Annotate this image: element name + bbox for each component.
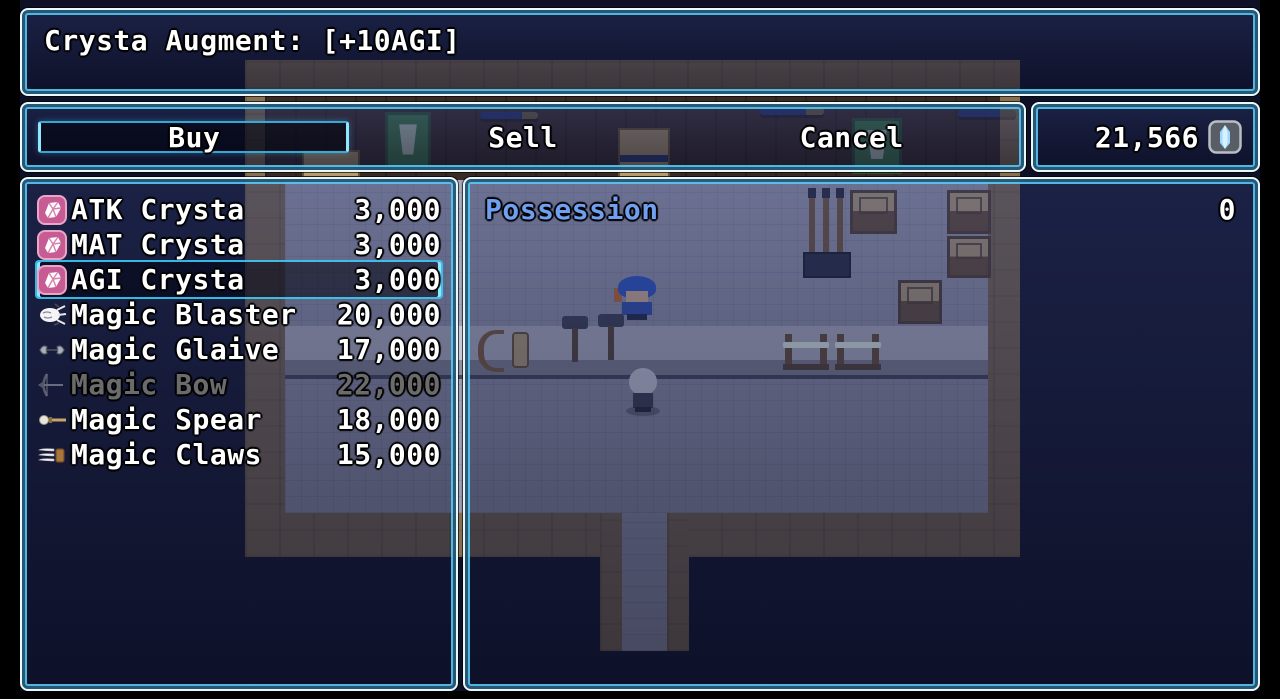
item-price: 15,000 xyxy=(337,438,441,471)
shop-item-row[interactable]: MAT Crysta3,000 xyxy=(37,227,441,262)
command-sell-label: Sell xyxy=(488,121,557,154)
shop-item-row[interactable]: Magic Blaster20,000 xyxy=(37,297,441,332)
letterbox-right xyxy=(1260,0,1280,699)
claws-item-icon xyxy=(37,440,67,470)
command-buy[interactable]: Buy xyxy=(30,112,359,162)
item-price: 3,000 xyxy=(354,193,441,226)
help-text: Crysta Augment: [+10AGI] xyxy=(44,24,461,57)
shop-item-row[interactable]: Magic Claws15,000 xyxy=(37,437,441,472)
letterbox-bottom xyxy=(0,691,1280,699)
command-sell[interactable]: Sell xyxy=(359,112,688,162)
item-name: Magic Glaive xyxy=(71,333,279,366)
shop-item-list: ATK Crysta3,000MAT Crysta3,000AGI Crysta… xyxy=(37,192,441,472)
item-price: 20,000 xyxy=(337,298,441,331)
crysta-item-icon xyxy=(37,265,67,295)
command-cancel[interactable]: Cancel xyxy=(687,112,1016,162)
help-window: Crysta Augment: [+10AGI] xyxy=(20,8,1260,96)
buy-list-window: ATK Crysta3,000MAT Crysta3,000AGI Crysta… xyxy=(20,177,458,691)
bow-item-icon xyxy=(37,370,67,400)
item-name: ATK Crysta xyxy=(71,193,245,226)
item-name: Magic Blaster xyxy=(71,298,297,331)
item-price: 22,000 xyxy=(337,368,441,401)
command-cancel-label: Cancel xyxy=(800,121,904,154)
item-name: AGI Crysta xyxy=(71,263,245,296)
item-name: Magic Claws xyxy=(71,438,262,471)
item-name: Magic Spear xyxy=(71,403,262,436)
command-buy-label: Buy xyxy=(168,121,220,154)
shop-status-window: Possession 0 xyxy=(463,177,1260,691)
blaster-item-icon xyxy=(37,300,67,330)
crysta-item-icon xyxy=(37,195,67,225)
spear-item-icon xyxy=(37,405,67,435)
shop-item-row[interactable]: Magic Spear18,000 xyxy=(37,402,441,437)
item-price: 18,000 xyxy=(337,403,441,436)
crysta-currency-icon xyxy=(1208,120,1242,154)
shop-item-row[interactable]: Magic Glaive17,000 xyxy=(37,332,441,367)
item-name: MAT Crysta xyxy=(71,228,245,261)
shop-item-row[interactable]: Magic Bow22,000 xyxy=(37,367,441,402)
shop-item-row[interactable]: AGI Crysta3,000 xyxy=(37,262,441,297)
item-name: Magic Bow xyxy=(71,368,227,401)
game-screen: Crysta Augment: [+10AGI] Buy Sell Cancel… xyxy=(0,0,1280,699)
letterbox-left xyxy=(0,0,20,699)
crysta-item-icon xyxy=(37,230,67,260)
gold-amount: 21,566 xyxy=(1095,121,1199,154)
item-price: 17,000 xyxy=(337,333,441,366)
glaive-item-icon xyxy=(37,335,67,365)
possession-line: Possession 0 xyxy=(485,193,1236,226)
shop-command-window: Buy Sell Cancel xyxy=(20,102,1026,172)
gold-window: 21,566 xyxy=(1031,102,1260,172)
item-price: 3,000 xyxy=(354,228,441,261)
shop-item-row[interactable]: ATK Crysta3,000 xyxy=(37,192,441,227)
possession-label: Possession xyxy=(485,193,659,226)
item-price: 3,000 xyxy=(354,263,441,296)
possession-value: 0 xyxy=(1219,193,1236,226)
